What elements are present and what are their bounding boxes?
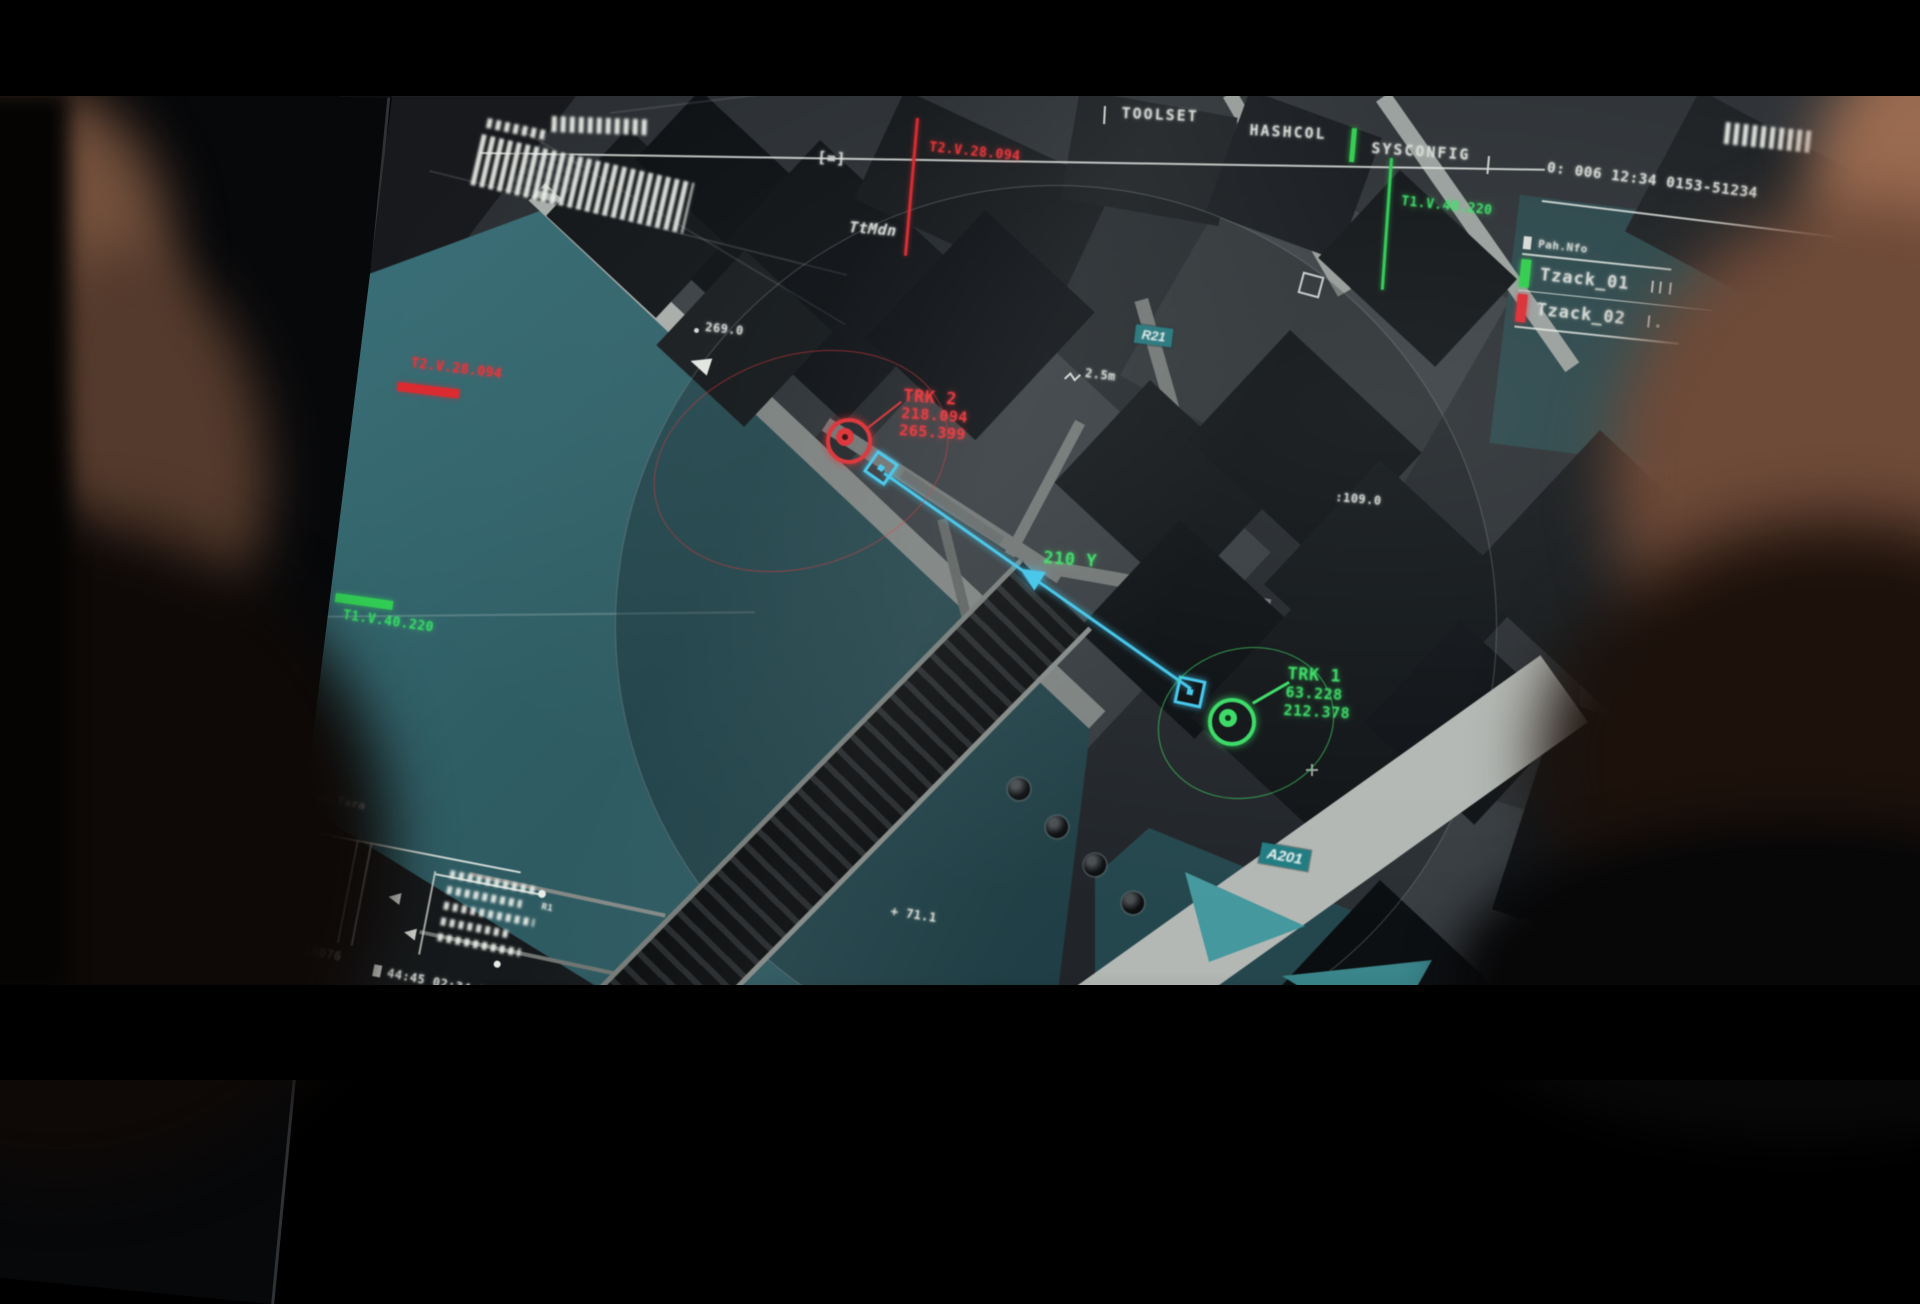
ref-point-label: R1 xyxy=(540,902,554,914)
menu-item-toolset[interactable]: TOOLSET xyxy=(1121,104,1199,125)
info-icon xyxy=(1523,236,1532,250)
legend-item-label: Tzack_02 xyxy=(1535,300,1626,329)
bridge-piling xyxy=(1046,816,1068,838)
track1-color-bar xyxy=(1519,258,1532,287)
trk1-bullseye-dot xyxy=(1225,715,1231,721)
schematic-line xyxy=(418,871,436,955)
track2-color-bar xyxy=(1515,294,1528,323)
bridge-piling xyxy=(1084,854,1106,876)
trk1-value-2: 212.378 xyxy=(1283,701,1351,722)
menu-item-sysconfig[interactable]: SYSCONFIG xyxy=(1371,139,1471,164)
letterbox-bottom xyxy=(0,985,1920,1080)
bearing-label: 210 Y xyxy=(1043,548,1098,572)
point-dot xyxy=(694,328,699,333)
bridge-piling xyxy=(1122,892,1144,914)
menu-tick xyxy=(1486,156,1490,174)
schematic-arrow xyxy=(387,891,401,905)
bridge-piling xyxy=(1008,778,1030,800)
box-icon xyxy=(372,964,382,977)
bracket-icon: [=] xyxy=(817,148,847,168)
left-edge-shadow xyxy=(0,90,70,990)
trk2-bullseye-dot xyxy=(842,434,848,440)
schematic-arrow xyxy=(403,926,417,940)
schematic-node xyxy=(493,960,501,968)
schematic-node xyxy=(537,889,546,898)
letterbox-top xyxy=(0,0,1920,96)
topbar-glyph-cluster xyxy=(551,116,647,135)
legend-ticks xyxy=(1651,280,1672,294)
legend-item-label: Tzack_01 xyxy=(1539,264,1630,293)
